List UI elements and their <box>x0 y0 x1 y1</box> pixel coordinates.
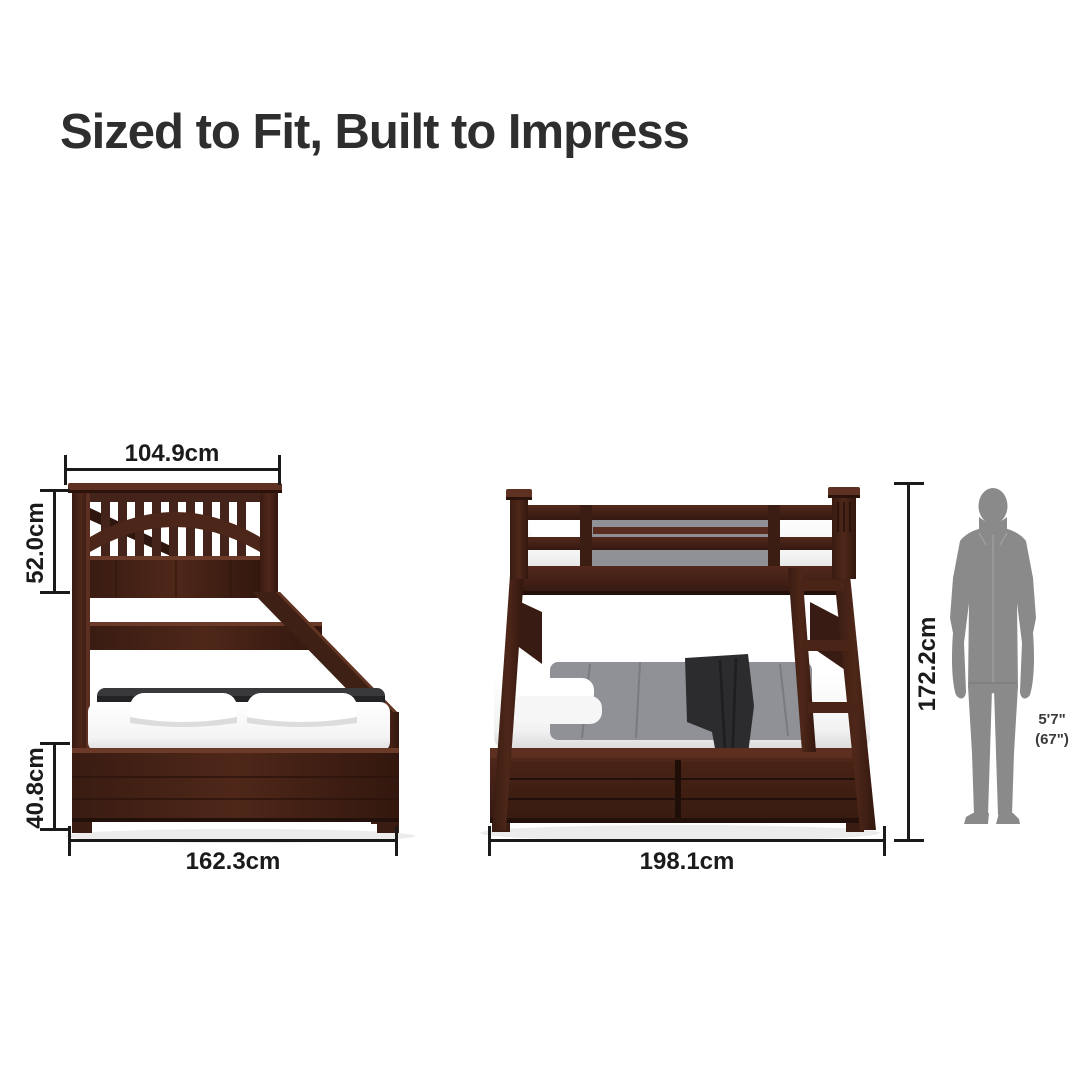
side-view-diagram <box>480 480 900 845</box>
front-view-diagram <box>55 430 415 850</box>
drawer-right <box>681 762 860 818</box>
storage-base <box>490 748 866 832</box>
front-headboard-panel <box>90 556 260 598</box>
dim-label-length: 198.1cm <box>607 848 767 876</box>
scale-height-inches: (67") <box>1026 730 1078 750</box>
dim-line-top-width <box>64 468 281 471</box>
lower-pillows <box>504 678 602 724</box>
dim-label-total-height: 172.2cm <box>914 609 942 719</box>
front-headboard-lattice <box>90 493 260 556</box>
front-right-post <box>260 493 278 598</box>
front-headboard-cap <box>68 483 282 493</box>
page-title: Sized to Fit, Built to Impress <box>60 104 689 160</box>
dim-line-lower-height <box>53 742 56 831</box>
front-base <box>72 748 399 833</box>
product-dimension-infographic: Sized to Fit, Built to Impress <box>0 0 1080 1080</box>
dim-line-length <box>488 839 886 842</box>
dim-label-bottom-width: 162.3cm <box>153 848 313 876</box>
dim-label-top-width: 104.9cm <box>92 440 252 468</box>
dim-label-lower-height: 40.8cm <box>22 738 50 838</box>
scale-figure <box>930 483 1075 833</box>
scale-height-feet: 5'7" <box>1026 710 1078 730</box>
scale-height-label: 5'7" (67") <box>1026 710 1078 749</box>
dim-label-upper-height: 52.0cm <box>22 493 50 593</box>
dim-line-upper-height <box>53 489 56 594</box>
drawer-left <box>500 762 675 818</box>
dim-line-total-height <box>907 482 910 842</box>
dim-line-bottom-width <box>68 839 398 842</box>
